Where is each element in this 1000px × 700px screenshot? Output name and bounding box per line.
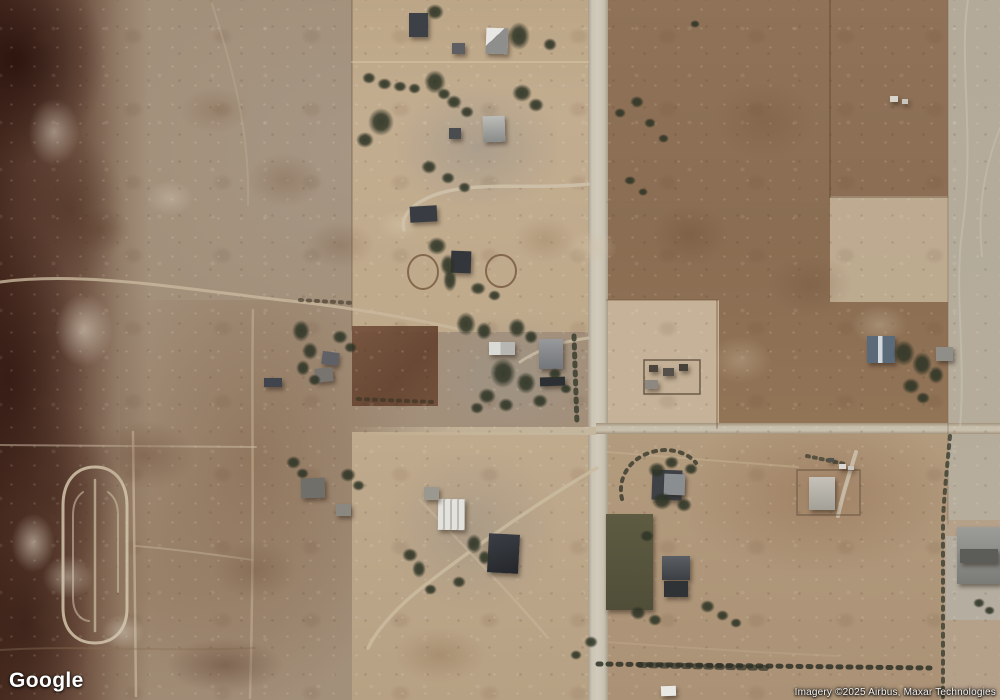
compound-fence [644,360,700,394]
bush-row [640,665,770,668]
trail [133,432,136,696]
satellite-map-canvas[interactable]: Google Imagery ©2025 Airbus, Maxar Techn… [0,0,1000,700]
trail [212,4,248,205]
corral-ring [486,255,516,287]
bush-row [943,436,950,697]
bush-row [358,399,433,402]
trails-and-fences-overlay [0,0,1000,700]
dirt-track-inner [108,492,118,592]
trail [607,642,838,656]
parcel-line [607,202,830,204]
trail [0,279,462,330]
driveway-mid [520,338,588,362]
driveway-north [403,184,588,230]
trail [420,500,548,638]
driveway-sw [368,468,597,648]
farmyard-fence [797,470,860,515]
trail [980,128,1000,256]
imagery-attribution: Imagery ©2025 Airbus, Maxar Technologies [795,687,996,698]
trail [136,546,253,560]
bush-row [574,336,577,424]
trail [250,310,253,698]
google-logo[interactable]: Google [9,669,84,693]
corral-ring [408,255,438,289]
trail [0,648,255,650]
trail [0,445,256,447]
trail [959,0,968,428]
dirt-track-inner [73,492,89,621]
bush-row [807,456,845,464]
